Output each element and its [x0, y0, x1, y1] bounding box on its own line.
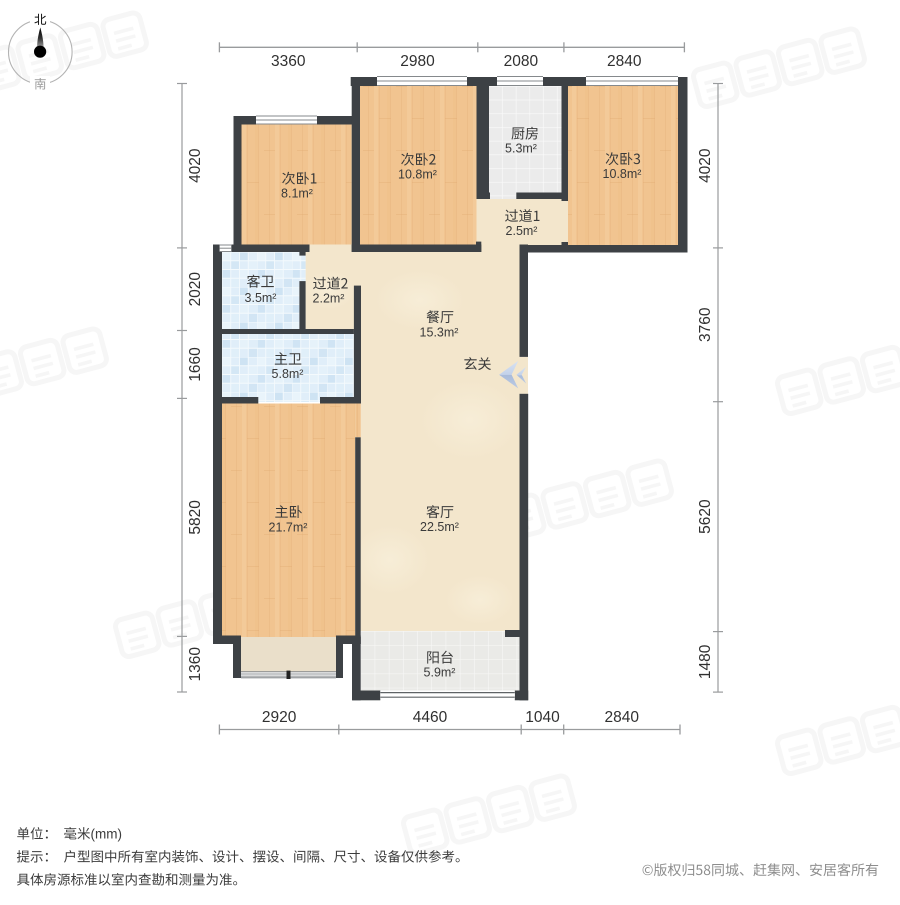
svg-text:2920: 2920: [262, 709, 297, 726]
svg-text:4020: 4020: [697, 148, 714, 183]
svg-text:2980: 2980: [400, 53, 435, 70]
svg-text:15.3m²: 15.3m²: [420, 326, 459, 340]
svg-text:5820: 5820: [187, 500, 204, 535]
svg-text:22.5m²: 22.5m²: [420, 520, 459, 534]
svg-text:3360: 3360: [271, 53, 306, 70]
svg-text:5.8m²: 5.8m²: [272, 367, 304, 381]
svg-text:5.3m²: 5.3m²: [505, 142, 537, 156]
svg-text:10.8m²: 10.8m²: [398, 168, 437, 182]
svg-text:3.5m²: 3.5m²: [245, 291, 277, 305]
svg-text:5620: 5620: [697, 499, 714, 534]
svg-text:2.5m²: 2.5m²: [506, 224, 538, 238]
svg-text:(mm): (mm): [91, 827, 122, 842]
svg-text:1360: 1360: [187, 647, 204, 682]
svg-text:4460: 4460: [413, 709, 448, 726]
svg-text:21.7m²: 21.7m²: [269, 521, 308, 535]
svg-text:5.9m²: 5.9m²: [424, 666, 456, 680]
svg-text:1660: 1660: [187, 347, 204, 382]
svg-text:2840: 2840: [605, 709, 640, 726]
svg-text:2020: 2020: [187, 272, 204, 307]
svg-text:8.1m²: 8.1m²: [281, 187, 313, 201]
svg-text:2840: 2840: [607, 53, 642, 70]
svg-text:2080: 2080: [504, 53, 539, 70]
svg-text:1040: 1040: [525, 709, 560, 726]
svg-text:3760: 3760: [697, 307, 714, 342]
svg-text:2.2m²: 2.2m²: [313, 292, 345, 306]
svg-text:10.8m²: 10.8m²: [603, 167, 642, 181]
svg-text:1480: 1480: [697, 644, 714, 679]
svg-text:4020: 4020: [187, 148, 204, 183]
